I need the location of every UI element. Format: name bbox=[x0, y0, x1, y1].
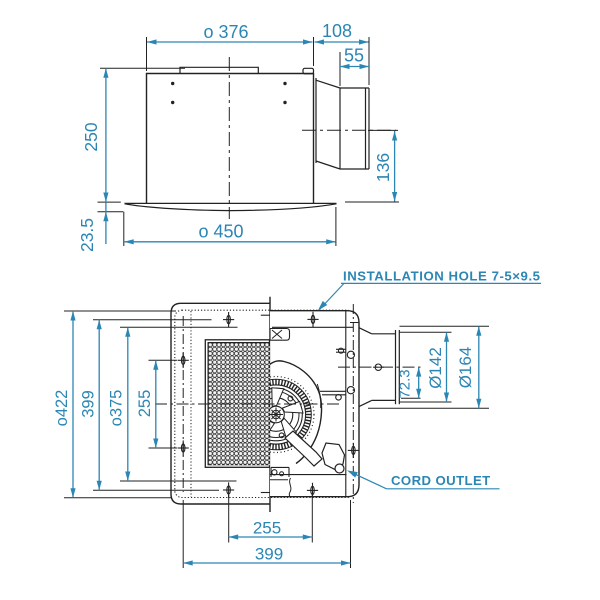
svg-text:Ø142: Ø142 bbox=[426, 347, 445, 389]
svg-text:23.5: 23.5 bbox=[77, 218, 97, 252]
svg-text:o375: o375 bbox=[108, 390, 126, 427]
svg-text:399: 399 bbox=[255, 545, 283, 564]
svg-text:72.3: 72.3 bbox=[397, 369, 414, 398]
svg-text:399: 399 bbox=[80, 390, 98, 418]
svg-text:255: 255 bbox=[253, 519, 281, 538]
svg-text:o 450: o 450 bbox=[198, 222, 243, 242]
svg-text:55: 55 bbox=[344, 46, 364, 66]
svg-text:INSTALLATION HOLE 7-5×9.5: INSTALLATION HOLE 7-5×9.5 bbox=[343, 269, 541, 284]
svg-text:o422: o422 bbox=[53, 390, 71, 427]
svg-text:108: 108 bbox=[322, 21, 352, 41]
svg-text:136: 136 bbox=[373, 153, 393, 182]
svg-text:255: 255 bbox=[136, 390, 154, 418]
svg-text:o 376: o 376 bbox=[203, 22, 248, 42]
svg-text:Ø164: Ø164 bbox=[456, 347, 475, 389]
svg-text:250: 250 bbox=[81, 122, 101, 151]
svg-text:CORD OUTLET: CORD OUTLET bbox=[391, 473, 491, 488]
